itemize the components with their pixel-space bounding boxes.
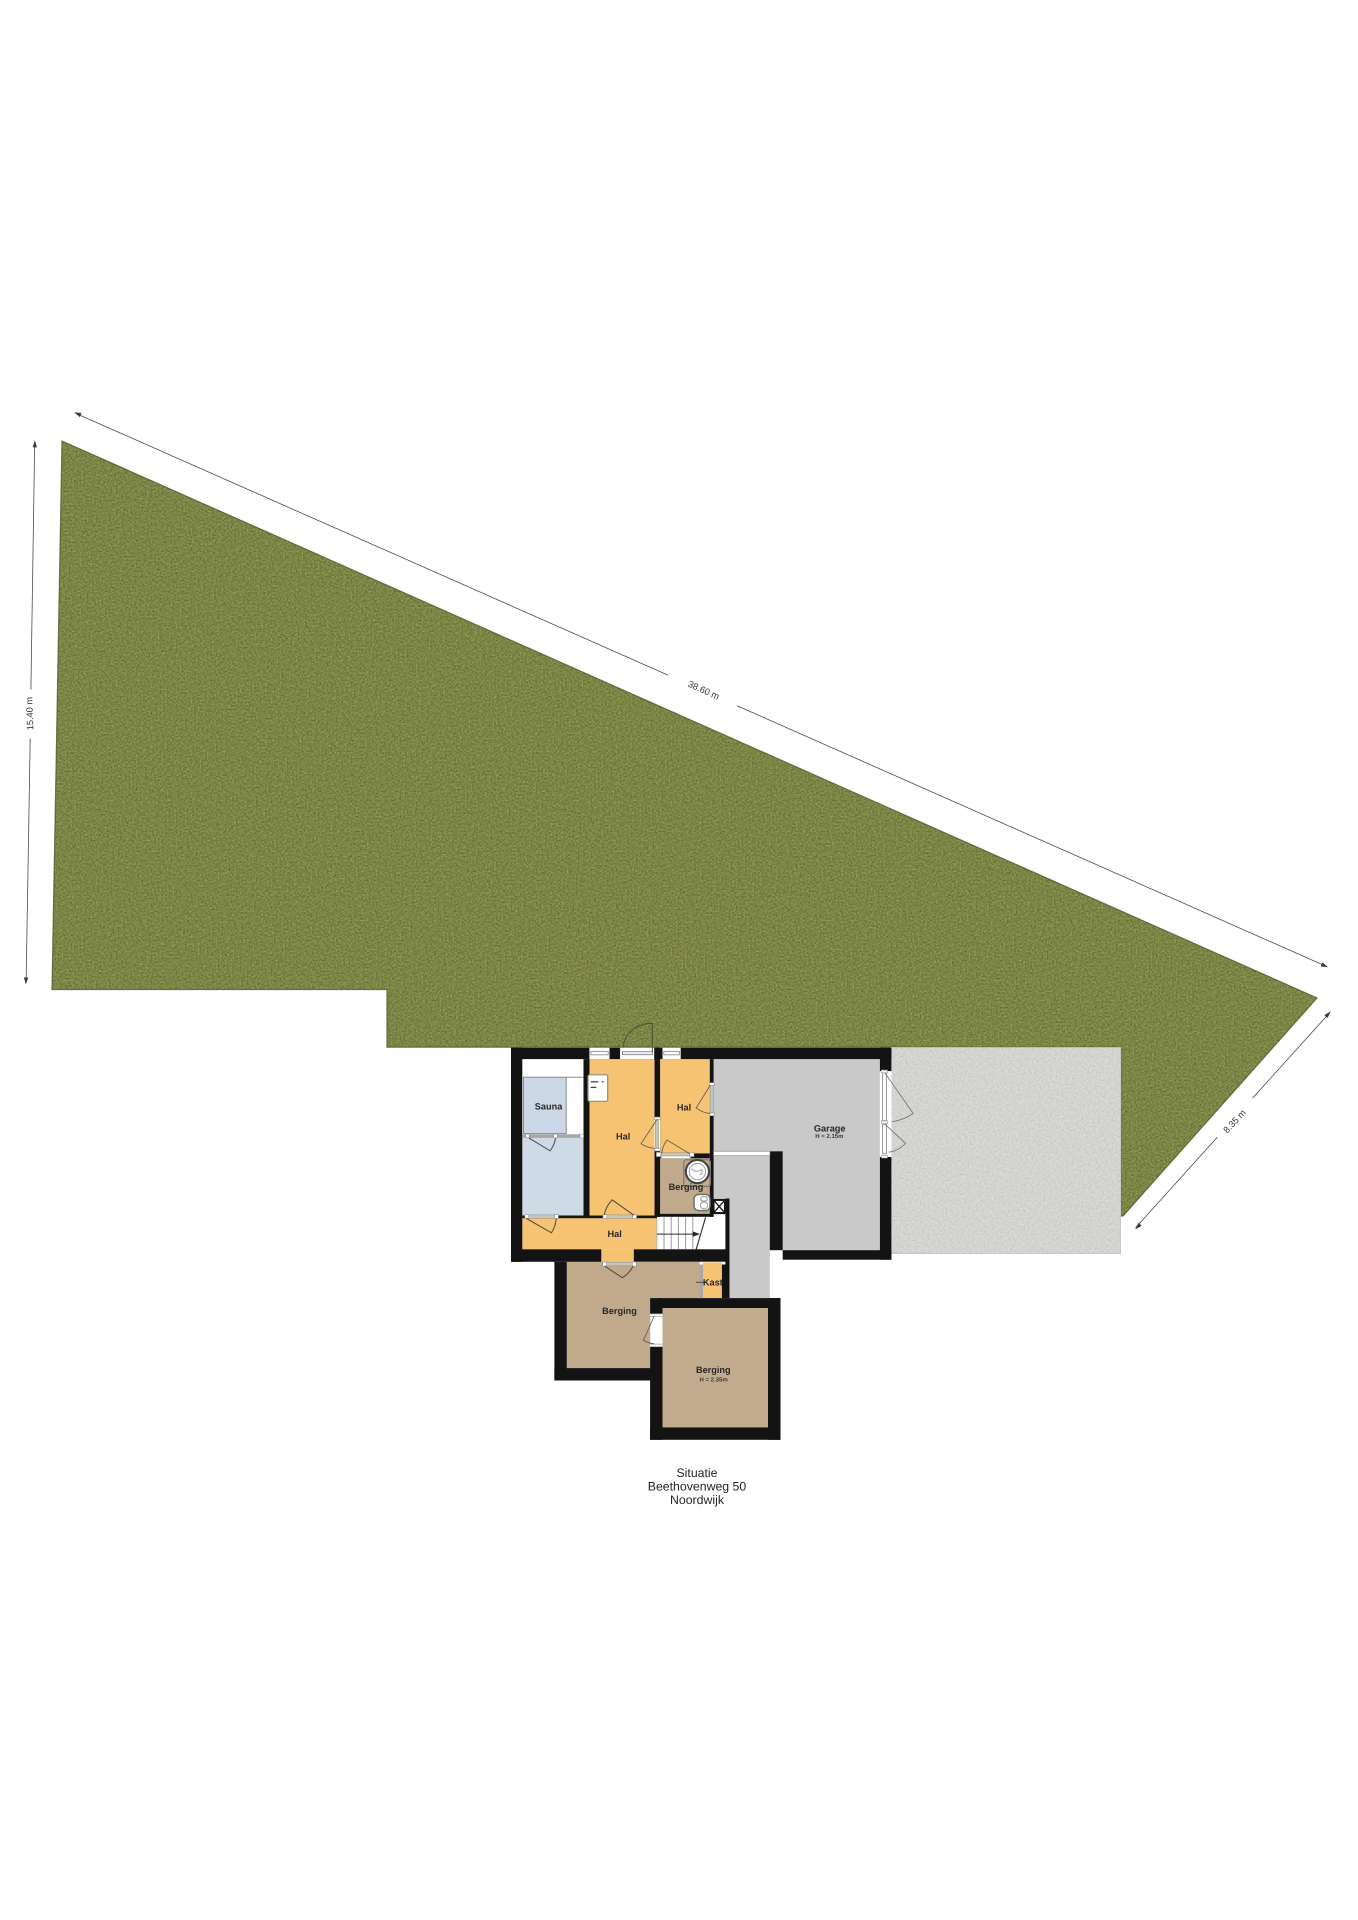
svg-text:Berging: Berging xyxy=(696,1365,731,1375)
svg-text:Beethovenweg 50: Beethovenweg 50 xyxy=(648,1480,747,1494)
svg-text:Noordwijk: Noordwijk xyxy=(670,1493,725,1507)
svg-text:Garage: Garage xyxy=(814,1124,846,1134)
svg-text:H = 2.35m: H = 2.35m xyxy=(700,1376,728,1383)
svg-text:Hal: Hal xyxy=(616,1132,630,1142)
svg-text:Berging: Berging xyxy=(669,1182,704,1192)
svg-text:Berging: Berging xyxy=(602,1306,637,1316)
svg-text:Hal: Hal xyxy=(677,1102,691,1112)
svg-text:Hal: Hal xyxy=(608,1229,622,1239)
svg-text:Kast: Kast xyxy=(703,1278,723,1288)
svg-text:H = 2.15m: H = 2.15m xyxy=(815,1133,843,1140)
svg-text:Sauna: Sauna xyxy=(535,1102,563,1112)
svg-text:Situatie: Situatie xyxy=(676,1466,717,1480)
svg-text:15.40 m: 15.40 m xyxy=(24,696,35,730)
